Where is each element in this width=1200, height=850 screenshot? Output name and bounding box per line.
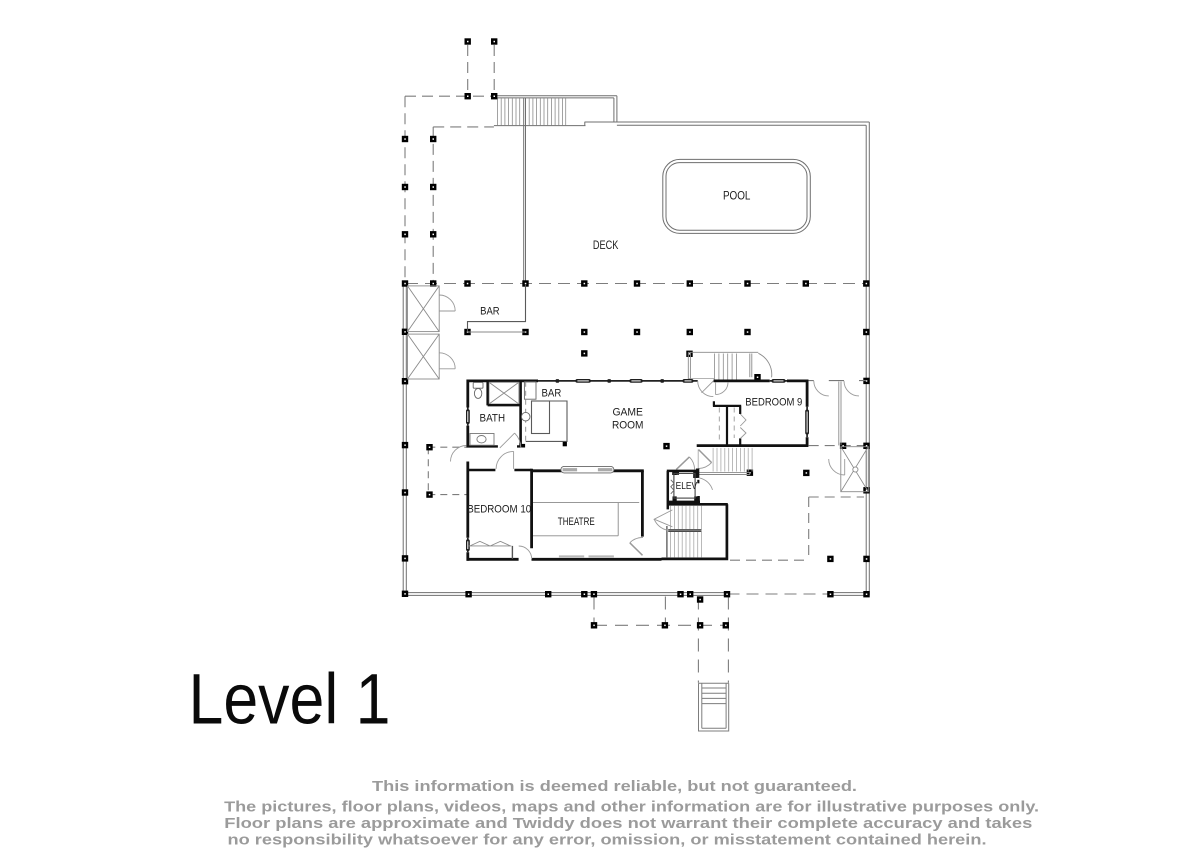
svg-text:BEDROOM 9: BEDROOM 9 xyxy=(745,397,802,409)
svg-text:POOL: POOL xyxy=(723,191,751,203)
svg-text:ROOM: ROOM xyxy=(612,419,644,431)
svg-text:no responsibility whatsoever f: no responsibility whatsoever for any err… xyxy=(228,833,987,849)
svg-text:ELEV: ELEV xyxy=(676,481,698,492)
svg-text:DECK: DECK xyxy=(593,240,619,252)
svg-text:Level 1: Level 1 xyxy=(189,661,391,740)
svg-text:BAR: BAR xyxy=(480,306,500,318)
svg-text:BATH: BATH xyxy=(480,412,506,424)
svg-text:GAME: GAME xyxy=(612,406,643,418)
svg-text:BEDROOM 10: BEDROOM 10 xyxy=(467,504,531,516)
svg-text:BAR: BAR xyxy=(542,387,562,399)
svg-text:The pictures, floor plans, vid: The pictures, floor plans, videos, maps … xyxy=(224,799,1039,815)
svg-text:This information is deemed rel: This information is deemed reliable, but… xyxy=(372,779,857,795)
svg-text:Floor plans are approximate an: Floor plans are approximate and Twiddy d… xyxy=(224,816,1032,832)
svg-text:THEATRE: THEATRE xyxy=(558,516,595,528)
